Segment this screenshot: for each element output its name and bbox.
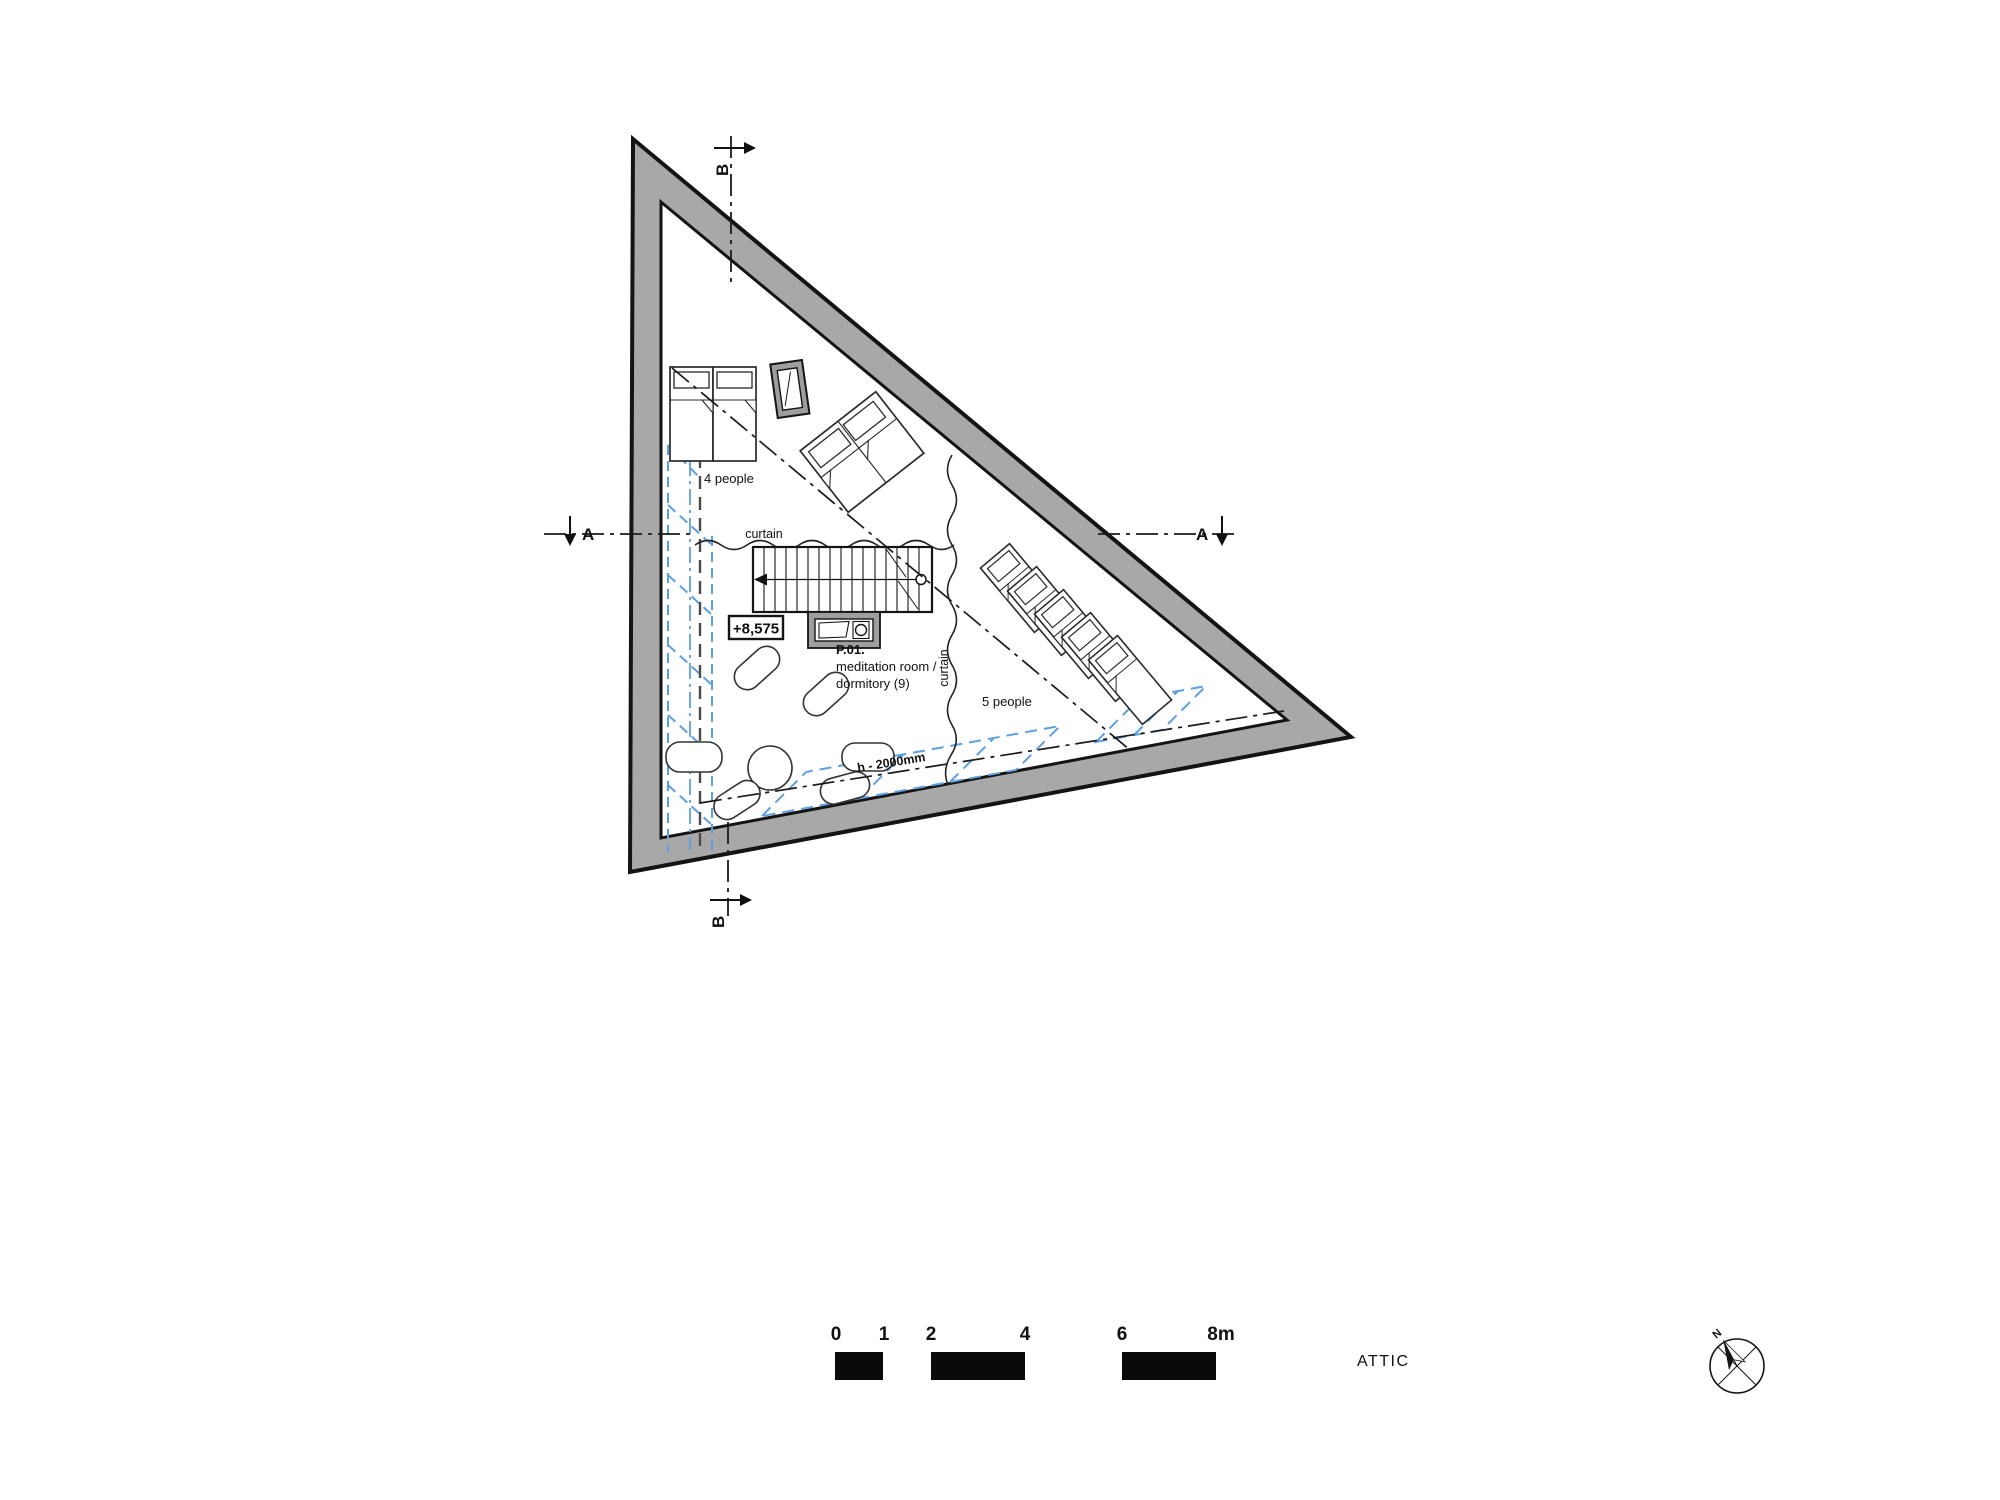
stairs	[753, 547, 932, 612]
section-label-a: A	[582, 525, 594, 544]
scale-tick-2: 2	[926, 1324, 937, 1345]
section-marker-a-right: A	[1196, 516, 1228, 546]
level-marker-text: +8,575	[733, 621, 779, 638]
room-name-line1: meditation room /	[836, 659, 937, 674]
section-marker-b-bottom: B	[709, 894, 752, 928]
scale-tick-4: 4	[1020, 1324, 1031, 1345]
curtain-label-top: curtain	[745, 527, 783, 541]
capacity-label-4-people: 4 people	[704, 471, 754, 486]
scale-bar-segment	[835, 1352, 883, 1380]
capacity-label-5-people: 5 people	[982, 694, 1032, 709]
attic-plan-drawing: +8,575	[0, 0, 2000, 1500]
section-label-b: B	[709, 916, 728, 928]
section-arrow	[740, 894, 752, 906]
curtain-label-right: curtain	[937, 649, 951, 687]
scale-tick-8m: 8m	[1207, 1324, 1234, 1345]
level-marker: +8,575	[729, 616, 783, 639]
north-compass: N	[1710, 1327, 1764, 1393]
north-needle	[1715, 1336, 1745, 1370]
north-label: N	[1710, 1327, 1724, 1341]
section-arrow	[744, 142, 756, 154]
cushion	[666, 742, 722, 772]
section-label-a: A	[1196, 525, 1208, 544]
scale-bar-segment	[931, 1352, 1025, 1380]
scale-bar: 0 1 2 4 6 8m	[831, 1324, 1235, 1380]
section-arrow	[564, 534, 576, 546]
room-number: P.01.	[836, 642, 865, 657]
room-name-line2: dormitory (9)	[836, 676, 910, 691]
skylight-window	[770, 360, 809, 418]
scale-tick-1: 1	[879, 1324, 890, 1345]
scale-bar-segment	[1122, 1352, 1216, 1380]
section-marker-a-left: A	[564, 516, 594, 546]
section-arrow	[1216, 534, 1228, 546]
twin-beds	[670, 367, 756, 461]
section-marker-b-top: B	[713, 142, 756, 176]
floor-plan-sheet: +8,575	[0, 0, 2000, 1500]
floor-title: ATTIC	[1357, 1353, 1410, 1370]
section-label-b: B	[713, 164, 732, 176]
scale-tick-0: 0	[831, 1324, 842, 1345]
scale-tick-6: 6	[1117, 1324, 1128, 1345]
